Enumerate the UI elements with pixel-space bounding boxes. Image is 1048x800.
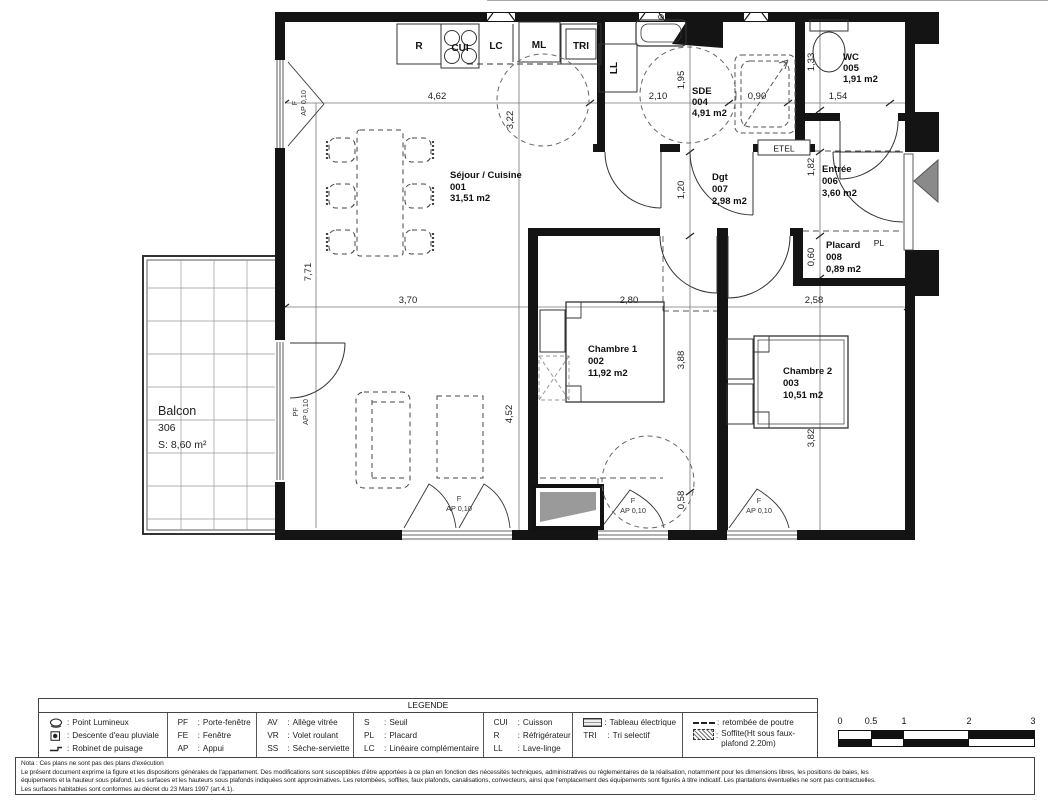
- svg-text:0,58: 0,58: [676, 491, 687, 510]
- door-entree: [833, 152, 903, 222]
- floor-plan-svg: Séjour / Cuisine 001 31,51 m2 Chambre 1 …: [0, 0, 1048, 696]
- tri-label: TRI: [573, 41, 589, 52]
- legend-box: LEGENDE : Point Lumineux : Descente d'ea…: [38, 698, 818, 760]
- legend-col-icons: : Point Lumineux : Descente d'eau pluvia…: [39, 713, 167, 761]
- legend-col-symbols: :retombée de poutre :Soffite(Ht sous fau…: [682, 713, 817, 761]
- svg-text:31,51 m2: 31,51 m2: [450, 193, 490, 204]
- svg-text:3,88: 3,88: [676, 351, 687, 370]
- svg-text:4,91 m2: 4,91 m2: [692, 108, 727, 119]
- svg-text:AP 0,10: AP 0,10: [746, 506, 772, 515]
- balcony: [143, 256, 283, 534]
- svg-text:4,52: 4,52: [504, 405, 515, 424]
- svg-text:10,51 m2: 10,51 m2: [783, 390, 823, 401]
- svg-text:007: 007: [712, 184, 728, 195]
- svg-text:AP 0,10: AP 0,10: [446, 504, 472, 513]
- svg-text:2,80: 2,80: [620, 295, 639, 306]
- legend-item: : Robinet de puisage: [49, 742, 167, 755]
- cooktop-label: CUI: [451, 43, 468, 54]
- svg-text:PF: PF: [291, 407, 300, 417]
- notes-box: Nota : Ces plans ne sont pas des plans d…: [15, 757, 1035, 795]
- svg-text:F: F: [631, 496, 636, 505]
- legend-col-cui: CUI:Cuisson R:Réfrigérateur LL:Lave-ling…: [483, 713, 573, 761]
- page-top-rule: [487, 0, 1048, 1]
- svg-text:0,89 m2: 0,89 m2: [826, 264, 861, 275]
- legend-item: : Point Lumineux: [49, 716, 167, 729]
- svg-text:003: 003: [783, 378, 799, 389]
- floor-plan-page: Séjour / Cuisine 001 31,51 m2 Chambre 1 …: [0, 0, 1048, 800]
- fridge-label: R: [415, 41, 423, 52]
- svg-text:3,22: 3,22: [505, 111, 516, 130]
- svg-text:001: 001: [450, 182, 467, 193]
- entry-door-leaf: [904, 154, 913, 250]
- svg-text:005: 005: [843, 63, 860, 74]
- svg-text:3,70: 3,70: [399, 295, 418, 306]
- svg-text:1,91 m2: 1,91 m2: [843, 74, 878, 85]
- room-label-sde: SDE: [692, 86, 712, 97]
- svg-text:2,98 m2: 2,98 m2: [712, 196, 747, 207]
- svg-text:004: 004: [692, 97, 709, 108]
- room-label-dgt: Dgt: [712, 172, 729, 183]
- svg-text:1,95: 1,95: [676, 71, 687, 90]
- svg-text:1,33: 1,33: [806, 53, 817, 72]
- dining-table: [327, 130, 433, 256]
- svg-text:1,82: 1,82: [806, 158, 817, 177]
- crib-dashed: [539, 356, 569, 400]
- hatched-area-icon: [693, 729, 714, 740]
- svg-text:006: 006: [822, 176, 838, 187]
- svg-text:F: F: [290, 100, 299, 105]
- coffee-table: [437, 396, 483, 478]
- room-label-wc: WC: [843, 52, 859, 63]
- svg-text:0,60: 0,60: [806, 248, 817, 267]
- svg-text:1,20: 1,20: [676, 181, 687, 200]
- svg-text:0,90: 0,90: [748, 91, 767, 102]
- nightstand: [727, 339, 753, 379]
- door-chambre1: [660, 236, 717, 293]
- svg-text:S: 8,60 m²: S: 8,60 m²: [158, 439, 207, 451]
- entrance-arrow-icon: [914, 160, 938, 202]
- svg-text:F: F: [457, 494, 462, 503]
- svg-text:11,92 m2: 11,92 m2: [588, 368, 628, 379]
- legend-col-av: AV:Allège vitrée VR:Volet roulant SS:Sèc…: [256, 713, 353, 761]
- door-chambre2: [728, 236, 790, 298]
- lc-label: LC: [489, 41, 502, 52]
- sofa: [356, 392, 410, 488]
- legend-col-electrical: :Tableau électrique TRI:Tri selectif: [572, 713, 682, 761]
- svg-text:2,58: 2,58: [805, 295, 824, 306]
- note-line: Nota : Ces plans ne sont pas des plans d…: [21, 760, 1029, 769]
- legend-col-s: S:Seuil PL:Placard LC:Linéaire complémen…: [353, 713, 483, 761]
- door-sejour: [605, 152, 661, 208]
- svg-text:2,10: 2,10: [649, 91, 668, 102]
- water-tap-icon: [49, 744, 67, 754]
- note-line: Les surfaces habitables sont conformes a…: [21, 786, 1029, 795]
- svg-text:AP 0,10: AP 0,10: [620, 506, 646, 515]
- nightstand: [727, 384, 753, 424]
- duct-soffit: [534, 486, 602, 528]
- legend-title: LEGENDE: [39, 699, 817, 713]
- legend-item: : Descente d'eau pluviale: [49, 729, 167, 742]
- legend-col-pf: PF:Porte-fenêtre FE:Fenêtre AP:Appui: [167, 713, 257, 761]
- svg-text:306: 306: [158, 422, 176, 434]
- pl-label: PL: [874, 238, 885, 248]
- ll-label: LL: [609, 62, 620, 74]
- svg-text:F: F: [757, 496, 762, 505]
- note-line: équipements et la hauteur sous plafond. …: [21, 777, 1029, 786]
- room-label-placard: Placard: [826, 240, 861, 251]
- dashed-line-icon: [693, 722, 715, 724]
- svg-text:3,60 m2: 3,60 m2: [822, 188, 857, 199]
- rainwater-downpipe-icon: [49, 731, 67, 741]
- note-line: Le présent document exprime la figure et…: [21, 769, 1029, 778]
- ceiling-light-icon: [49, 718, 67, 728]
- room-label-sejour: Séjour / Cuisine: [450, 170, 522, 181]
- svg-text:1,54: 1,54: [829, 91, 848, 102]
- electrical-panel-icon: [583, 718, 602, 727]
- svg-text:AP 0,10: AP 0,10: [301, 399, 310, 425]
- dimension-labels: 4,62 2,10 0,90 1,54 3,70 2,80 2,58 7,71 …: [303, 53, 847, 510]
- room-label-chambre1: Chambre 1: [588, 344, 638, 355]
- scale-bar: 0 0.5 1 2 3: [838, 716, 1038, 754]
- svg-text:3,82: 3,82: [806, 429, 817, 448]
- svg-text:002: 002: [588, 356, 604, 367]
- svg-text:4,62: 4,62: [428, 91, 447, 102]
- svg-text:AP 0,10: AP 0,10: [299, 90, 308, 116]
- ml-label: ML: [532, 40, 546, 51]
- room-label-entree: Entrée: [822, 164, 852, 175]
- room-label-balcon: Balcon: [158, 404, 196, 418]
- svg-text:7,71: 7,71: [303, 263, 314, 282]
- room-label-chambre2: Chambre 2: [783, 366, 832, 377]
- svg-text:008: 008: [826, 252, 842, 263]
- balcony-door: [275, 340, 345, 482]
- etel-label: ETEL: [773, 144, 795, 154]
- nightstand: [540, 310, 565, 352]
- chair-backs: [327, 141, 433, 251]
